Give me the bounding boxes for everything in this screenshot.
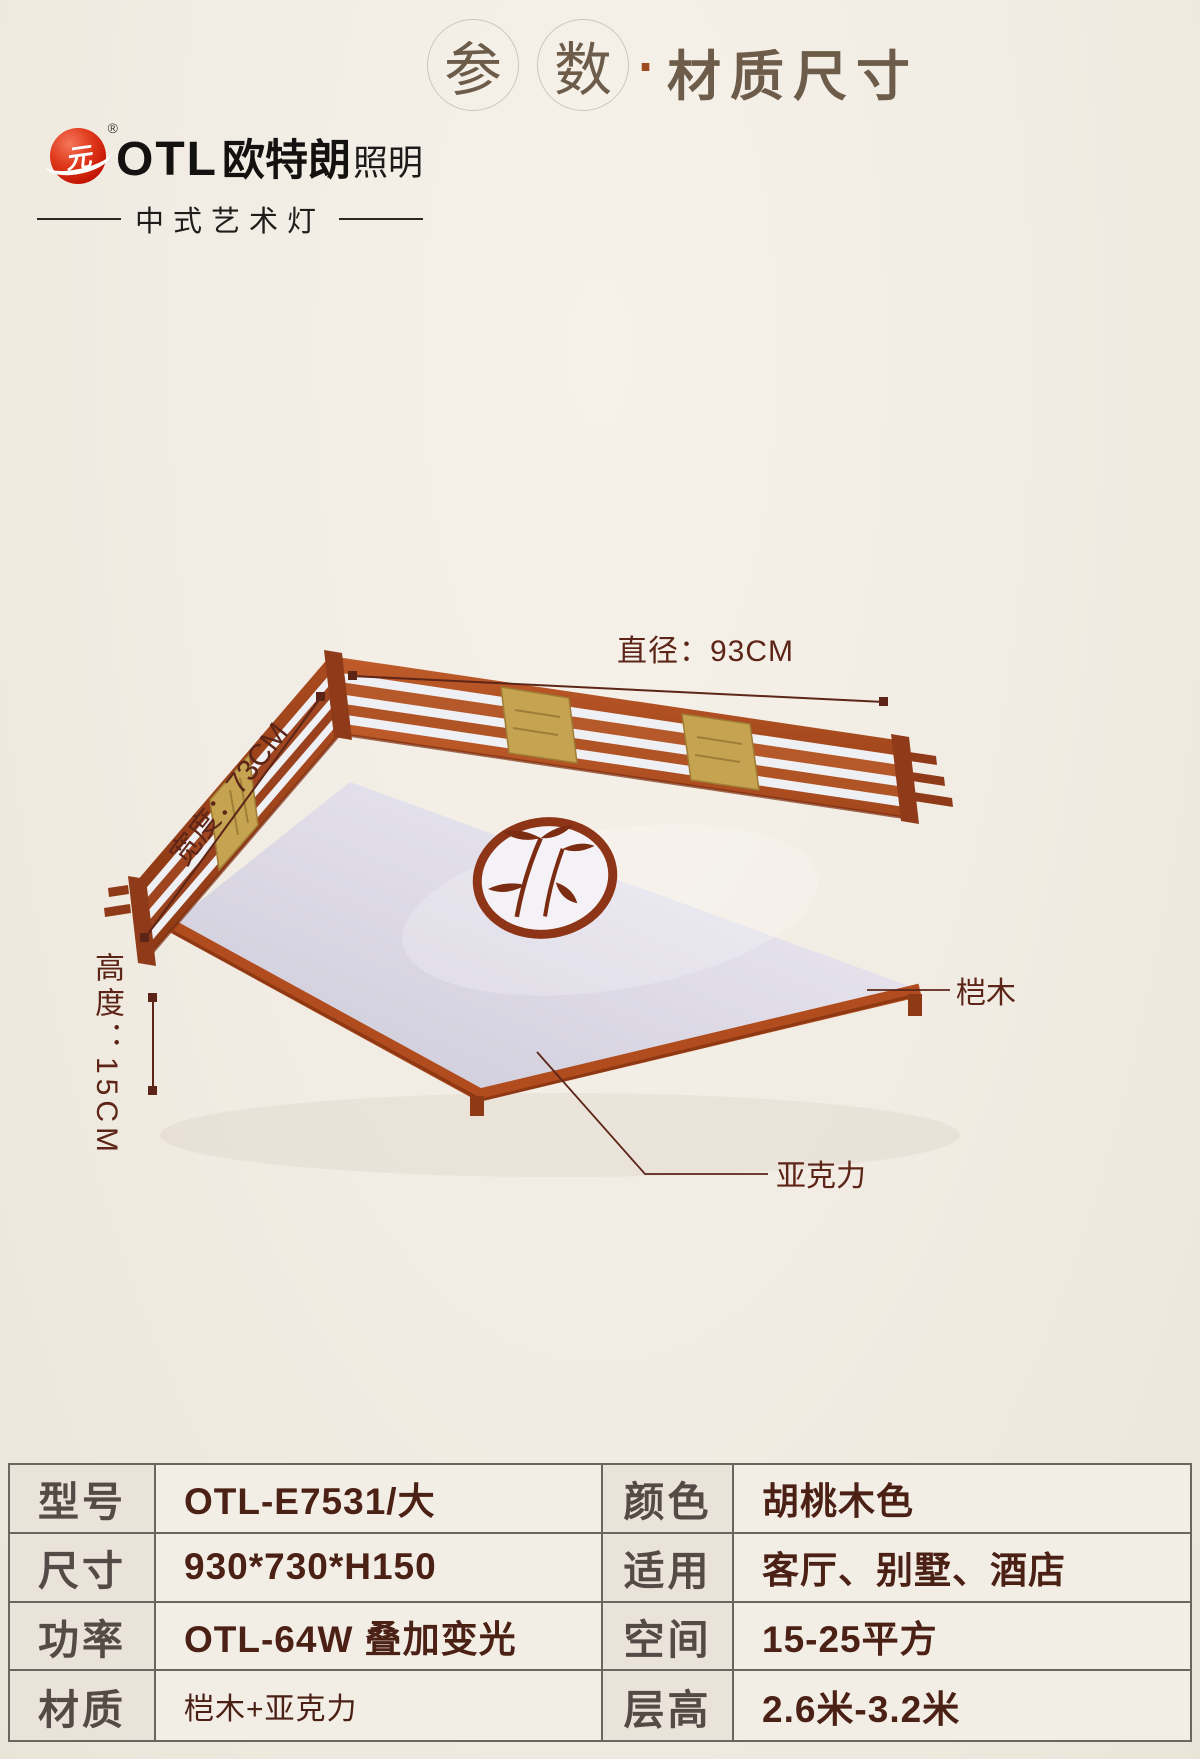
spec-label-color: 颜色 — [603, 1465, 734, 1534]
spec-value-size: 930*730*H150 — [156, 1534, 603, 1603]
lamp-foot-bottom — [470, 1096, 484, 1116]
brass-plaque-top-1 — [501, 687, 577, 763]
wood-material-label: 桤木 — [956, 968, 1016, 1012]
lamp-foot-right — [908, 994, 922, 1016]
diameter-label: 直径：93CM — [617, 626, 794, 670]
spec-label-material: 材质 — [10, 1671, 156, 1740]
height-label: 高度：15CM — [84, 952, 128, 1192]
spec-value-space: 15-25平方 — [734, 1603, 1190, 1672]
spec-value-material: 桤木+亚克力 — [156, 1671, 603, 1740]
spec-label-power: 功率 — [10, 1603, 156, 1672]
spec-label-size: 尺寸 — [10, 1534, 156, 1603]
acrylic-material-label: 亚克力 — [776, 1151, 866, 1195]
spec-table: 型号 OTL-E7531/大 颜色 胡桃木色 尺寸 930*730*H150 适… — [8, 1463, 1192, 1742]
product-spec-page: 参 数 · 材质尺寸 元 ® OTL 欧特朗 照明 中式艺术灯 — [0, 0, 1200, 1759]
brass-plaque-top-2 — [682, 714, 759, 790]
spec-label-model: 型号 — [10, 1465, 156, 1534]
spec-value-ceiling-height: 2.6米-3.2米 — [734, 1671, 1190, 1740]
spec-value-color: 胡桃木色 — [734, 1465, 1190, 1534]
spec-label-space: 空间 — [603, 1603, 734, 1672]
spec-label-ceiling-height: 层高 — [603, 1671, 734, 1740]
spec-label-usage: 适用 — [603, 1534, 734, 1603]
spec-value-model: OTL-E7531/大 — [156, 1465, 603, 1534]
spec-value-usage: 客厅、别墅、酒店 — [734, 1534, 1190, 1603]
spec-value-power: OTL-64W 叠加变光 — [156, 1603, 603, 1672]
